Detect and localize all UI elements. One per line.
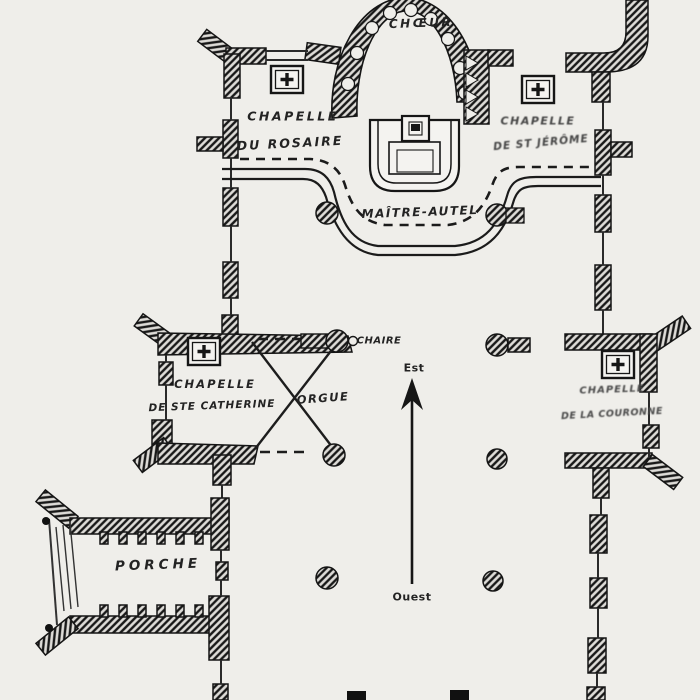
- wall-pier: [593, 468, 609, 498]
- altar-icon: [188, 338, 220, 365]
- label-porche: PORCHE: [115, 556, 202, 575]
- label-choeur: CHŒUR: [389, 15, 454, 31]
- label-compass-est: Est: [404, 362, 425, 375]
- legend-swatch: [450, 690, 469, 700]
- altar-icon: [522, 76, 554, 103]
- wall-pier: [587, 687, 605, 700]
- wall-pier: [223, 262, 238, 298]
- church-floor-plan: [0, 0, 700, 700]
- porch-walls: [36, 490, 229, 700]
- wall-pier: [611, 142, 632, 157]
- porch-tooth: [195, 605, 203, 617]
- floor-plan-page: CHŒUR CHAPELLE DU ROSAIRE CHAPELLE DE ST…: [0, 0, 700, 700]
- pulpit-column: [326, 330, 348, 352]
- label-chaire: CHAIRE: [357, 336, 402, 347]
- rail-column: [486, 204, 508, 226]
- wall-pier: [216, 562, 228, 580]
- porch-tooth: [176, 605, 184, 617]
- compass-arrow: [401, 378, 423, 584]
- porch-tooth: [176, 532, 184, 544]
- altar-icon: [271, 66, 303, 93]
- label-chapelle-catherine: CHAPELLE: [174, 377, 256, 391]
- porch-corner-dot: [45, 624, 53, 632]
- wall-pier: [643, 425, 659, 448]
- wall-pier: [595, 265, 611, 310]
- wall-pier: [197, 137, 223, 151]
- porch-tooth: [138, 605, 146, 617]
- corner-wall: [566, 0, 648, 72]
- chapel-south-wall: [158, 443, 258, 464]
- wall-pier: [595, 130, 611, 175]
- wall-pier: [588, 638, 606, 673]
- column: [316, 567, 338, 589]
- wall-pier: [590, 515, 607, 553]
- wall-pier: [643, 455, 682, 490]
- altar-icon: [602, 351, 634, 378]
- wall-bar: [565, 334, 652, 350]
- porch-tooth: [138, 532, 146, 544]
- wall-pier: [213, 455, 231, 485]
- wall-pier: [224, 54, 240, 98]
- porch-tooth: [119, 605, 127, 617]
- wall-pier: [595, 195, 611, 232]
- column: [486, 334, 508, 356]
- rail-column: [316, 202, 338, 224]
- label-chapelle-couronne: CHAPELLE: [579, 383, 645, 396]
- wall-bar: [565, 453, 652, 468]
- organ-column: [323, 444, 345, 466]
- label-chapelle-rosaire: CHAPELLE: [247, 109, 338, 124]
- legend-swatch: [347, 691, 366, 700]
- column: [487, 449, 507, 469]
- porch-south-wall: [70, 616, 215, 633]
- wall-pier: [223, 188, 238, 226]
- wall-pier: [590, 578, 607, 608]
- wall-stub: [488, 50, 513, 66]
- jerome-chapel-walls: [488, 0, 648, 310]
- wall-pier: [209, 596, 229, 660]
- porch-steps: [49, 519, 78, 625]
- wall-stub: [508, 338, 530, 352]
- label-compass-ouest: Ouest: [393, 591, 432, 604]
- porch-tooth: [157, 605, 165, 617]
- column: [483, 571, 503, 591]
- wall-stub: [305, 43, 341, 65]
- porch-tooth: [157, 532, 165, 544]
- label-chapelle-jerome: CHAPELLE: [501, 115, 576, 128]
- wall-pier: [211, 498, 229, 550]
- high-altar: [370, 116, 459, 191]
- porch-tooth: [119, 532, 127, 544]
- porch-tooth: [100, 532, 108, 544]
- wall-pier: [213, 684, 228, 700]
- porch-corner-dot: [42, 517, 50, 525]
- porch-tooth: [195, 532, 203, 544]
- porch-tooth: [100, 605, 108, 617]
- wall-pier: [592, 72, 610, 102]
- wall-stub: [506, 208, 524, 223]
- wall-pier: [159, 362, 173, 385]
